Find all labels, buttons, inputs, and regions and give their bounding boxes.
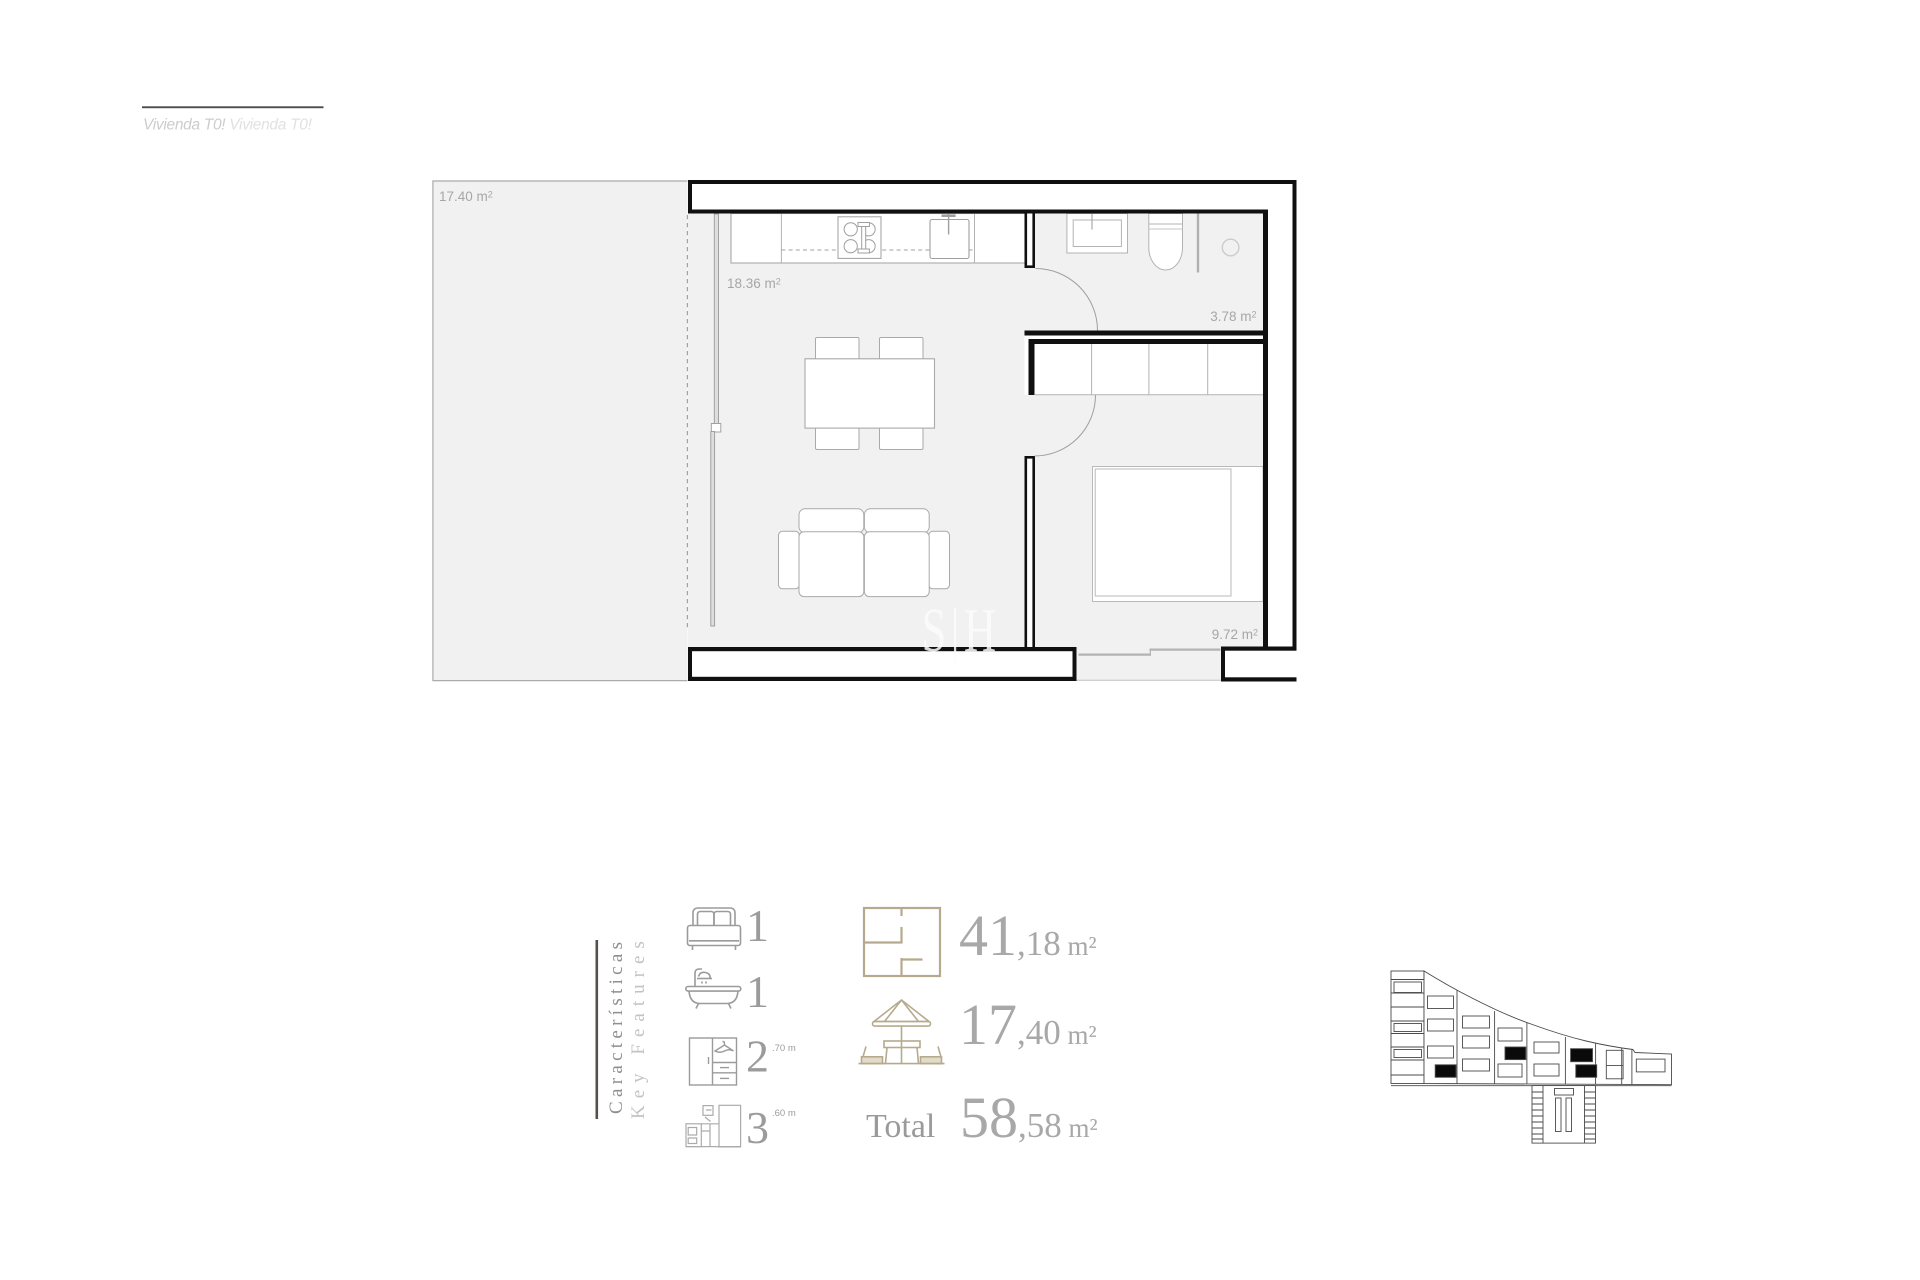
svg-text:9.72 m2: 9.72 m2 — [1212, 627, 1258, 642]
svg-text:17.40 m2: 17.40 m2 — [439, 189, 493, 204]
svg-text:1: 1 — [746, 966, 769, 1017]
svg-text:1: 1 — [746, 900, 769, 951]
svg-text:S|H: S|H — [922, 596, 1001, 665]
svg-text:2: 2 — [746, 1031, 769, 1082]
svg-text:Key Features: Key Features — [628, 934, 649, 1119]
svg-text:.60 m: .60 m — [772, 1108, 796, 1119]
svg-text:18.36 m2: 18.36 m2 — [727, 276, 781, 291]
svg-text:Vivienda T0! Vivienda T0!: Vivienda T0! Vivienda T0! — [143, 117, 313, 134]
svg-text:3: 3 — [746, 1102, 769, 1153]
svg-text:.70 m: .70 m — [772, 1043, 796, 1054]
svg-text:Total: Total — [866, 1108, 935, 1145]
svg-text:3.78 m2: 3.78 m2 — [1210, 309, 1256, 324]
svg-text:Características: Características — [606, 938, 627, 1114]
